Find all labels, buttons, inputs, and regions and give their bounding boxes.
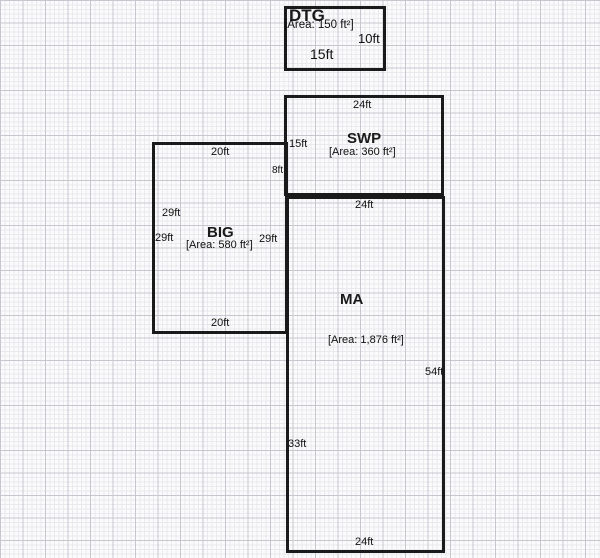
room-swp-dim-left: 15ft — [289, 138, 307, 150]
room-big-dim-left-lower: 29ft — [155, 232, 173, 244]
room-dtg-dim-bottom: 15ft — [310, 47, 333, 62]
room-ma-dim-right: 54ft — [425, 366, 443, 378]
room-big-dim-right-upper: 8ft — [272, 165, 283, 176]
room-big-dim-bottom: 20ft — [211, 317, 229, 329]
room-ma[interactable] — [286, 196, 445, 553]
room-big-area-label: [Area: 580 ft²] — [186, 239, 253, 251]
room-big-dim-top: 20ft — [211, 146, 229, 158]
room-ma-dim-bottom: 24ft — [355, 536, 373, 548]
room-big-dim-right: 29ft — [259, 233, 277, 245]
room-dtg-area-label: [Area: 150 ft²] — [284, 19, 354, 32]
grid-paper: DTG [Area: 150 ft²] 10ft 15ft 24ft SWP [… — [0, 0, 600, 558]
room-swp-area-label: [Area: 360 ft²] — [329, 146, 396, 158]
room-big-dim-left-upper: 29ft — [162, 207, 180, 219]
room-ma-name: MA — [340, 292, 363, 309]
room-ma-area-label: [Area: 1,876 ft²] — [328, 334, 404, 346]
room-ma-dim-top: 24ft — [355, 199, 373, 211]
room-swp-dim-top: 24ft — [353, 99, 371, 111]
room-ma-dim-left: 33ft — [288, 438, 306, 450]
room-dtg-dim-right: 10ft — [358, 32, 380, 46]
